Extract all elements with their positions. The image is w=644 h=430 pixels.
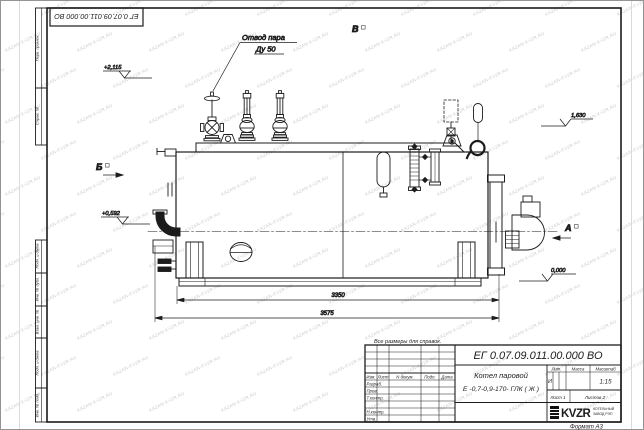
company-line2: ЗАВОД РЭП: [593, 412, 613, 416]
watermark-text: KAZAN-KVZR.RU: [544, 67, 581, 89]
col-data: Дата: [440, 375, 453, 380]
steam-outlet-valve: [201, 92, 224, 141]
watermark-text: KAZAN-KVZR.RU: [328, 67, 365, 89]
watermark-text: KAZAN-KVZR.RU: [544, 283, 581, 305]
watermark-text: KAZAN-KVZR.RU: [508, 391, 545, 413]
watermark-text: KAZAN-KVZR.RU: [4, 175, 41, 197]
scale-label: Масштаб: [595, 367, 616, 372]
watermark-text: KAZAN-KVZR.RU: [292, 175, 329, 197]
watermark-text: KAZAN-KVZR.RU: [148, 391, 185, 413]
watermark-text: KAZAN-KVZR.RU: [184, 139, 221, 161]
svg-text:+2,115: +2,115: [104, 65, 122, 71]
view-markers: Б В А: [96, 24, 578, 240]
watermark-text: KAZAN-KVZR.RU: [364, 247, 401, 269]
margin-label-podp-data-2: Подп. и дата: [35, 350, 40, 376]
lit-label: Лит.: [550, 367, 561, 372]
watermark-text: KAZAN-KVZR.RU: [40, 139, 77, 161]
lifting-lug-right: [443, 135, 461, 146]
boiler-view: [148, 91, 558, 286]
watermark-text: KAZAN-KVZR.RU: [436, 247, 473, 269]
watermark-text: KAZAN-KVZR.RU: [328, 211, 365, 233]
watermark-text: KAZAN-KVZR.RU: [76, 391, 113, 413]
watermark-text: KAZAN-KVZR.RU: [256, 355, 293, 377]
watermark-text: KAZAN-KVZR.RU: [400, 211, 437, 233]
safety-valve-1: [239, 91, 255, 141]
svg-text:А: А: [564, 223, 572, 233]
watermark-text: KAZAN-KVZR.RU: [184, 211, 221, 233]
watermark-text: KAZAN-KVZR.RU: [292, 31, 329, 53]
watermark-text: KAZAN-KVZR.RU: [40, 211, 77, 233]
svg-text:+0,592: +0,592: [102, 211, 121, 217]
watermark-text: KAZAN-KVZR.RU: [76, 247, 113, 269]
watermark-text: KAZAN-KVZR.RU: [364, 319, 401, 341]
watermark-text: KAZAN-KVZR.RU: [112, 355, 149, 377]
watermark-text: KAZAN-KVZR.RU: [220, 319, 257, 341]
view-marker-v-top: В: [352, 24, 365, 34]
svg-text:0,000: 0,000: [551, 268, 566, 274]
boiler-shell: [176, 152, 488, 278]
svg-text:В: В: [352, 24, 359, 34]
sheets-text: Листов 2: [584, 395, 606, 400]
company-logo: KVZR КОТЕЛЬНЫЙ ЗАВОД РЭП: [550, 406, 615, 420]
watermark-text: KAZAN-KVZR.RU: [40, 355, 77, 377]
watermark-text: KAZAN-KVZR.RU: [364, 103, 401, 125]
watermark-text: KAZAN-KVZR.RU: [256, 211, 293, 233]
row-tkontr: Т.контр.: [367, 396, 384, 401]
margin-label-sprav-no: Справ. №: [35, 106, 40, 125]
watermark-text: KAZAN-KVZR.RU: [580, 175, 617, 197]
steam-outlet-text-1: Отвод пара: [242, 33, 285, 42]
scale-value: 1:15: [599, 379, 612, 386]
watermark-text: KAZAN-KVZR.RU: [292, 319, 329, 341]
watermark-text: KAZAN-KVZR.RU: [436, 31, 473, 53]
watermark-text: KAZAN-KVZR.RU: [148, 319, 185, 341]
watermark-text: KAZAN-KVZR.RU: [148, 247, 185, 269]
watermark-text: KAZAN-KVZR.RU: [256, 139, 293, 161]
watermark-text: KAZAN-KVZR.RU: [76, 103, 113, 125]
watermark-text: KAZAN-KVZR.RU: [40, 67, 77, 89]
watermark-text: KAZAN-KVZR.RU: [40, 283, 77, 305]
watermark-text: KAZAN-KVZR.RU: [76, 175, 113, 197]
gauge-capsule: [474, 104, 483, 123]
logo-text: KVZR: [561, 408, 592, 420]
watermark-text: KAZAN-KVZR.RU: [220, 391, 257, 413]
title-block: ЕГ 0.07.09.011.00.000 ВО Котел паровой Е…: [365, 345, 621, 422]
svg-text:Б: Б: [96, 162, 103, 172]
row-nkontr: Н.контр.: [367, 410, 385, 415]
drawing-sheet: KAZAN-KVZR.RUKAZAN-KVZR.RUKAZAN-KVZR.RUK…: [0, 0, 644, 430]
watermark-text: KAZAN-KVZR.RU: [328, 355, 365, 377]
mass-label: Масса: [572, 367, 585, 372]
watermark-text: KAZAN-KVZR.RU: [112, 283, 149, 305]
watermark-text: KAZAN-KVZR.RU: [76, 319, 113, 341]
margin-label-vzam-inv: Взам. инв. №: [35, 309, 40, 334]
watermark-text: KAZAN-KVZR.RU: [544, 139, 581, 161]
watermark-text: KAZAN-KVZR.RU: [76, 31, 113, 53]
lifting-lug-left: [221, 135, 236, 144]
col-izm: Изм.: [366, 375, 375, 380]
watermark-text: KAZAN-KVZR.RU: [472, 211, 509, 233]
watermark-text: KAZAN-KVZR.RU: [472, 67, 509, 89]
watermark-text: KAZAN-KVZR.RU: [292, 391, 329, 413]
dim-3575-text: 3575: [320, 311, 334, 317]
watermark-text: KAZAN-KVZR.RU: [364, 175, 401, 197]
left-fittings: [153, 149, 176, 272]
watermark-text: KAZAN-KVZR.RU: [436, 319, 473, 341]
watermark-text: KAZAN-KVZR.RU: [580, 319, 617, 341]
row-prov: Пров.: [367, 389, 378, 394]
watermark-text: KAZAN-KVZR.RU: [220, 175, 257, 197]
margin-label-inv-dubl: Инв. № дубл.: [35, 277, 40, 302]
watermark-text: KAZAN-KVZR.RU: [508, 31, 545, 53]
watermark-text: KAZAN-KVZR.RU: [400, 67, 437, 89]
margin-label-podp-data-1: Подп. и дата: [35, 243, 40, 269]
watermark-text: KAZAN-KVZR.RU: [508, 103, 545, 125]
col-dokum: N докум.: [396, 375, 413, 380]
watermark-text: KAZAN-KVZR.RU: [184, 355, 221, 377]
title-block-designation: ЕГ 0.07.09.011.00.000 ВО: [473, 350, 603, 362]
format-label: Формат А3: [570, 425, 603, 430]
steam-outlet-text-2: Ду 50: [255, 45, 276, 54]
watermark-text: KAZAN-KVZR.RU: [580, 31, 617, 53]
watermark-text: KAZAN-KVZR.RU: [508, 319, 545, 341]
col-list: Лист: [376, 375, 388, 380]
watermark-text: KAZAN-KVZR.RU: [436, 175, 473, 197]
sheet-text: Лист 1: [549, 395, 566, 400]
row-utv: Утв.: [367, 417, 377, 422]
row-razrab: Разраб.: [367, 382, 383, 387]
watermark-text: KAZAN-KVZR.RU: [508, 175, 545, 197]
watermark-text: KAZAN-KVZR.RU: [580, 103, 617, 125]
lit-value: И: [548, 379, 552, 385]
elevation-0000: 0,000: [519, 268, 576, 281]
burner: [496, 196, 545, 250]
svg-text:1,630: 1,630: [571, 113, 586, 119]
watermark-text: KAZAN-KVZR.RU: [112, 139, 149, 161]
watermark-text: KAZAN-KVZR.RU: [148, 103, 185, 125]
elevation-marks: +2,115 +0,592 1,630 0,000: [101, 65, 593, 281]
margin-label-perv-primen: Перв. примен.: [35, 35, 40, 62]
company-line1: КОТЕЛЬНЫЙ: [593, 407, 615, 411]
watermark-text: KAZAN-KVZR.RU: [436, 103, 473, 125]
margin-label-inv-podl: Инв. № подл.: [35, 393, 40, 418]
margin-strip: Перв. примен. Справ. № Подп. и дата Инв.…: [35, 8, 48, 422]
watermark-text: KAZAN-KVZR.RU: [544, 211, 581, 233]
col-podp: Подп.: [424, 375, 435, 380]
dim-3350-text: 3350: [331, 293, 345, 299]
watermark-text: KAZAN-KVZR.RU: [256, 67, 293, 89]
dimensions: 3350 3575: [155, 246, 499, 322]
watermark-text: KAZAN-KVZR.RU: [148, 175, 185, 197]
watermark-text: KAZAN-KVZR.RU: [580, 247, 617, 269]
watermark-text: KAZAN-KVZR.RU: [328, 139, 365, 161]
steam-outlet-label: Отвод пара Ду 50: [213, 33, 297, 91]
watermark-text: KAZAN-KVZR.RU: [148, 31, 185, 53]
watermark-text: KAZAN-KVZR.RU: [292, 103, 329, 125]
watermark-text: KAZAN-KVZR.RU: [364, 31, 401, 53]
watermark-text: KAZAN-KVZR.RU: [292, 247, 329, 269]
product-name-line2: Е -0,7-0,9-170- ГЛК ( Ж ): [463, 386, 539, 393]
boiler-drawing-svg: KAZAN-KVZR.RUKAZAN-KVZR.RUKAZAN-KVZR.RUK…: [0, 0, 644, 430]
reference-note: Все размеры для справок.: [374, 339, 441, 345]
top-designation: ЕГ 0.07.09.011.00.000 ВО: [54, 12, 139, 21]
safety-valve-2: [272, 91, 288, 141]
view-marker-b-left: Б: [96, 162, 123, 177]
product-name-line1: Котел паровой: [474, 371, 529, 380]
